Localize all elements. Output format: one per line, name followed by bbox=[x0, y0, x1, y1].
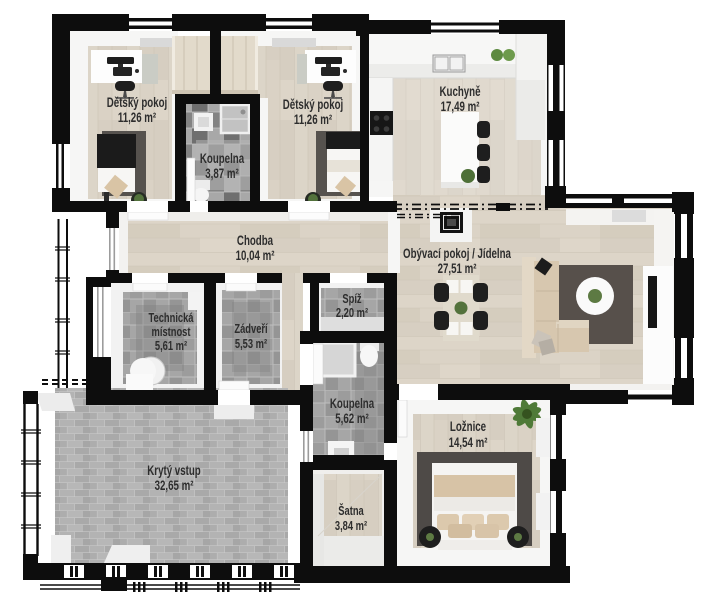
svg-text:11,26 m²: 11,26 m² bbox=[118, 111, 156, 126]
svg-text:32,65 m²: 32,65 m² bbox=[155, 479, 194, 494]
svg-text:10,04 m²: 10,04 m² bbox=[236, 249, 275, 264]
svg-text:Spíž: Spíž bbox=[342, 293, 362, 307]
svg-text:5,61 m²: 5,61 m² bbox=[155, 340, 187, 354]
svg-text:Koupelna: Koupelna bbox=[330, 397, 375, 412]
svg-text:27,51 m²: 27,51 m² bbox=[438, 262, 477, 277]
svg-text:14,54 m²: 14,54 m² bbox=[449, 436, 488, 451]
svg-text:11,26 m²: 11,26 m² bbox=[294, 113, 332, 128]
svg-text:Zádveří: Zádveří bbox=[234, 323, 268, 337]
svg-text:5,62 m²: 5,62 m² bbox=[335, 412, 369, 427]
svg-text:Koupelna: Koupelna bbox=[200, 152, 245, 167]
svg-text:Obývací pokoj / Jídelna: Obývací pokoj / Jídelna bbox=[403, 247, 511, 262]
svg-text:Kuchyně: Kuchyně bbox=[439, 85, 480, 100]
svg-text:Šatna: Šatna bbox=[338, 504, 364, 519]
svg-text:Ložnice: Ložnice bbox=[450, 420, 487, 435]
svg-text:Dětský pokoj: Dětský pokoj bbox=[283, 98, 343, 113]
svg-text:Chodba: Chodba bbox=[237, 234, 274, 249]
svg-text:Technická: Technická bbox=[148, 312, 194, 326]
svg-text:3,84 m²: 3,84 m² bbox=[335, 520, 367, 534]
svg-text:17,49 m²: 17,49 m² bbox=[441, 100, 480, 115]
svg-text:Krytý vstup: Krytý vstup bbox=[147, 464, 200, 479]
svg-text:2,20 m²: 2,20 m² bbox=[336, 307, 368, 321]
svg-text:Dětský pokoj: Dětský pokoj bbox=[107, 96, 167, 111]
svg-text:3,87 m²: 3,87 m² bbox=[205, 167, 239, 182]
svg-text:5,53 m²: 5,53 m² bbox=[235, 338, 267, 352]
svg-text:místnost: místnost bbox=[152, 326, 191, 340]
